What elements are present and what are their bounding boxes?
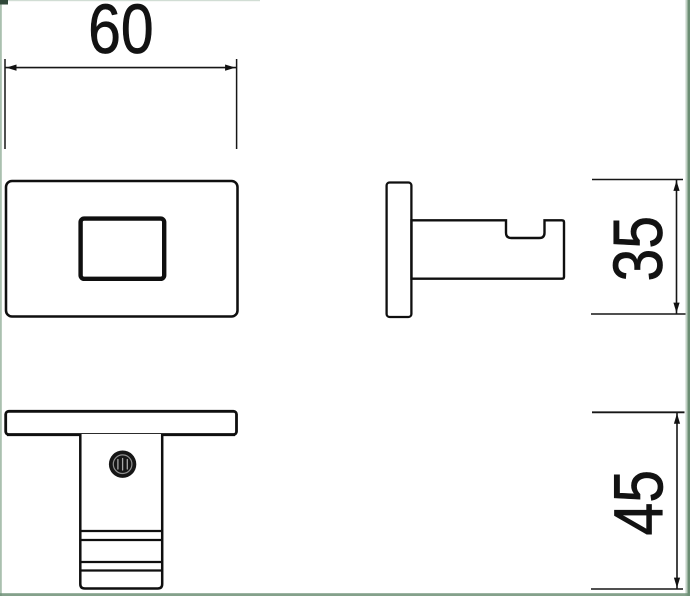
svg-text:60: 60 <box>88 0 154 68</box>
svg-text:45: 45 <box>600 470 678 536</box>
svg-text:35: 35 <box>599 216 677 282</box>
